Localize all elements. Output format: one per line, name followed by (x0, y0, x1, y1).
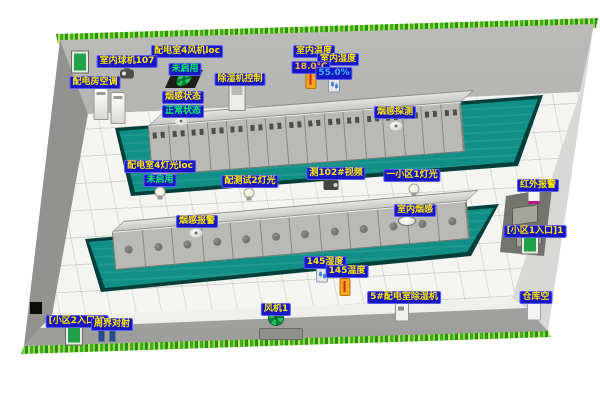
power-room-ac-label[interactable]: 配电房空调 (69, 76, 120, 89)
indoor-smoke-label[interactable]: 室内烟感 (394, 204, 436, 217)
smoke-detect-label[interactable]: 烟感探测 (374, 106, 416, 119)
warehouse-ac-label[interactable]: 仓库空 (519, 291, 552, 304)
sensor145-temp-label[interactable]: 145温度 (326, 265, 369, 278)
video102-label[interactable]: 测102#视频 (306, 167, 365, 180)
entrance1-label[interactable]: [小区1入口]1 (504, 225, 567, 238)
power-room-light-label[interactable]: 配电室4灯光loc (124, 160, 196, 173)
infrared-alarm-label[interactable]: 红外报警 (517, 179, 559, 192)
annotation-layer: 配电室4风机loc室内球机107未启用除湿机控制配电房空调室内温度室内湿度18.… (0, 0, 600, 400)
perimeter-beam-label[interactable]: 周界对射 (91, 318, 133, 331)
smoke-status-value[interactable]: 正常状态 (162, 105, 204, 118)
area1-light-label[interactable]: 一小区1灯光 (383, 169, 440, 182)
indoor-humidity-value[interactable]: 55.0% (315, 67, 352, 80)
test-light2-label[interactable]: 配测试2灯光 (221, 175, 278, 188)
power-room-light-status[interactable]: 未启用 (143, 174, 176, 187)
indoor-dome-camera-label[interactable]: 室内球机107 (97, 55, 158, 68)
power-room-3d-view: 配电室4风机loc室内球机107未启用除湿机控制配电房空调室内温度室内湿度18.… (0, 0, 600, 400)
smoke-alarm-label[interactable]: 烟感报警 (176, 215, 218, 228)
power-room-fan-label[interactable]: 配电室4风机loc (151, 45, 223, 58)
fan1-label[interactable]: 风机1 (261, 303, 291, 316)
smoke-status-label[interactable]: 烟感状态 (162, 91, 204, 104)
dehumidifier5-label[interactable]: 5#配电室除湿机 (367, 291, 441, 304)
power-room-fan-status[interactable]: 未启用 (168, 63, 201, 76)
dehumidifier-control-label[interactable]: 除湿机控制 (214, 73, 265, 86)
